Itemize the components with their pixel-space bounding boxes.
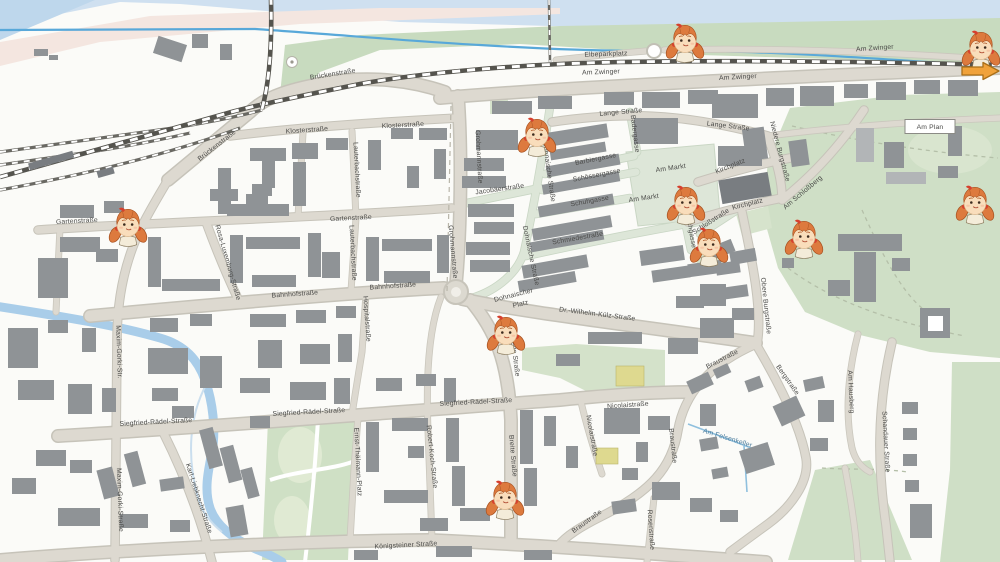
street-label: Am Zwinger xyxy=(582,68,621,76)
roundabout-elbeparkplatz xyxy=(647,44,661,58)
city-map[interactable]: BrückenstraßeBrückenstraßeKlosterstraßeK… xyxy=(0,0,1000,562)
monument-icon xyxy=(287,57,298,68)
street-label: Am Plan xyxy=(917,124,944,131)
